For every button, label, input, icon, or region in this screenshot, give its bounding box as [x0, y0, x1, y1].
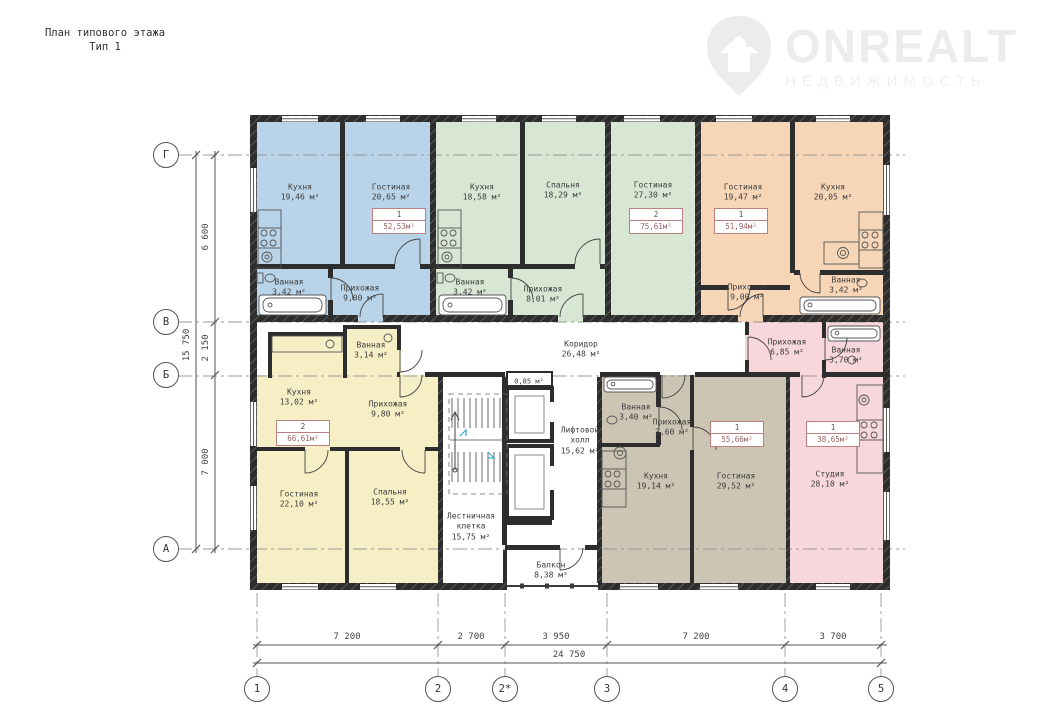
dim-bottom-4: 7 200 [682, 632, 709, 642]
dim-bottom-1: 7 200 [333, 632, 360, 642]
dim-left-3: 7 000 [201, 448, 211, 475]
apartment-badge-blue: 152,53м² [372, 208, 426, 234]
axis-bubble-col-4: 4 [772, 676, 798, 702]
room-label-yellow-living: Гостиная22,10 м² [280, 490, 319, 511]
room-label-pink-studio: Студия28,10 м² [811, 470, 850, 491]
room-label-orange-kitchen: Кухня20,05 м² [814, 183, 853, 204]
elevators [507, 372, 554, 518]
floorplan-page: План типового этажа Тип 1 ONREALT НЕДВИЖ… [0, 0, 1042, 712]
dim-bottom-2: 2 700 [457, 632, 484, 642]
room-label-stairwell: Лестничная клетка15,75 м² [440, 511, 502, 542]
room-label-blue-living: Гостиная20,65 м² [372, 183, 411, 204]
axis-bubble-col-1: 1 [244, 676, 270, 702]
room-label-orange-living: Гостиная19,47 м² [724, 183, 763, 204]
axis-bubble-row-a: А [153, 536, 179, 562]
room-label-blue-bath: Ванная3,42 м² [272, 278, 306, 299]
dim-bottom-3: 3 950 [542, 632, 569, 642]
room-label-blue-kitchen: Кухня19,46 м² [281, 183, 320, 204]
apartment-badge-green: 275,61м² [629, 208, 683, 234]
axis-bubble-row-b: Б [153, 362, 179, 388]
room-label-brown-hall: Прихожая3,60 м² [653, 418, 692, 439]
axis-bubble-col-2s: 2* [492, 676, 518, 702]
room-label-pink-hall: Прихожая6,85 м² [768, 338, 807, 359]
apartment-badge-pink: 138,65м² [806, 421, 860, 447]
room-label-green-living: Гостиная27,30 м² [634, 181, 673, 202]
apartment-badge-yellow: 266,61м² [276, 420, 330, 446]
axis-bubble-col-3: 3 [594, 676, 620, 702]
apartment-badge-brown: 155,66м² [710, 421, 764, 447]
axis-bubble-row-v: В [153, 309, 179, 335]
room-label-brown-living: Гостиная29,52 м² [717, 472, 756, 493]
axis-bubble-row-g: Г [153, 142, 179, 168]
room-label-green-bedroom: Спальня18,29 м² [544, 181, 583, 202]
axis-bubble-col-5: 5 [868, 676, 894, 702]
room-label-corridor: Коридор26,48 м² [562, 340, 601, 361]
room-label-blue-hall: Прихожая9,00 м² [341, 284, 380, 305]
dim-left-1: 6 600 [201, 223, 211, 250]
room-label-pink-bath: Ванная3,70 м² [829, 346, 863, 367]
dim-left-total: 15 750 [182, 329, 192, 362]
room-label-brown-bath: Ванная3,40 м² [619, 403, 653, 424]
apartment-badge-orange: 151,94м² [714, 208, 768, 234]
room-label-shaft: 0,85 м² [514, 377, 544, 386]
dim-bottom-total: 24 750 [553, 650, 586, 660]
room-label-yellow-hall: Прихожая9,80 м² [369, 400, 408, 421]
room-label-yellow-kitchen: Кухня13,02 м² [280, 388, 319, 409]
dim-bottom-5: 3 700 [819, 632, 846, 642]
room-label-orange-hall: Прихожая9,00 м² [728, 283, 767, 304]
axis-bubble-col-2: 2 [425, 676, 451, 702]
floorplan-drawing [0, 0, 1042, 712]
room-label-orange-bath: Ванная3,42 м² [829, 276, 863, 297]
room-label-green-bath: Ванная3,42 м² [453, 278, 487, 299]
dim-left-2: 2 150 [201, 334, 211, 361]
room-label-balcony: Балкон8,38 м² [534, 561, 568, 582]
room-label-lift-hall: Лифтовой холл15,62 м² [549, 425, 611, 456]
room-label-green-hall: Прихожая8,01 м² [524, 285, 563, 306]
room-label-yellow-bath: Ванная3,14 м² [354, 341, 388, 362]
room-label-yellow-bedroom: Спальня18,55 м² [371, 488, 410, 509]
room-label-brown-kitchen: Кухня19,14 м² [637, 472, 676, 493]
room-label-green-kitchen: Кухня18,58 м² [463, 183, 502, 204]
